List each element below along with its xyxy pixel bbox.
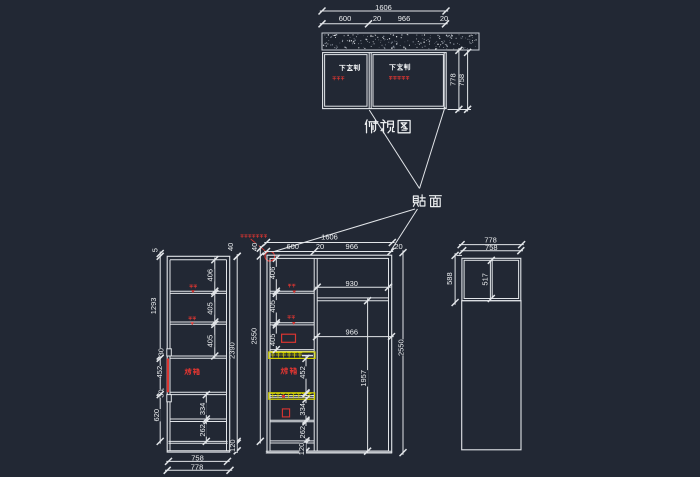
svg-text:5: 5 xyxy=(151,248,160,252)
svg-text:262: 262 xyxy=(198,424,207,437)
svg-text:966: 966 xyxy=(398,14,411,23)
svg-text:1293: 1293 xyxy=(149,298,158,315)
svg-text:2550: 2550 xyxy=(396,339,405,356)
svg-text:20: 20 xyxy=(394,242,402,251)
svg-text:452: 452 xyxy=(155,366,164,379)
svg-text:334: 334 xyxy=(298,403,307,416)
svg-text:778: 778 xyxy=(191,462,204,471)
svg-text:405: 405 xyxy=(206,302,215,315)
svg-text:2550: 2550 xyxy=(250,328,259,345)
svg-text:600: 600 xyxy=(286,242,299,251)
svg-text:930: 930 xyxy=(345,279,358,288)
svg-text:405: 405 xyxy=(268,334,277,347)
svg-text:120: 120 xyxy=(297,443,306,456)
svg-text:1606: 1606 xyxy=(321,232,338,241)
svg-text:966: 966 xyxy=(346,327,359,336)
svg-text:2390: 2390 xyxy=(228,342,237,359)
svg-text:452: 452 xyxy=(298,366,307,379)
svg-text:758: 758 xyxy=(485,243,498,252)
svg-text:262: 262 xyxy=(298,426,307,439)
svg-text:1606: 1606 xyxy=(375,3,392,12)
svg-text:20: 20 xyxy=(316,242,324,251)
svg-text:405: 405 xyxy=(206,335,215,348)
svg-text:966: 966 xyxy=(346,242,359,251)
svg-text:334: 334 xyxy=(198,403,207,416)
svg-text:758: 758 xyxy=(457,74,466,87)
svg-text:20: 20 xyxy=(440,14,448,23)
svg-text:600: 600 xyxy=(339,14,352,23)
svg-text:517: 517 xyxy=(480,273,489,286)
svg-text:588: 588 xyxy=(445,272,454,285)
svg-text:620: 620 xyxy=(152,409,161,422)
svg-text:778: 778 xyxy=(448,73,457,86)
svg-text:20: 20 xyxy=(373,14,381,23)
svg-text:406: 406 xyxy=(268,267,277,280)
svg-text:405: 405 xyxy=(268,300,277,313)
svg-text:1957: 1957 xyxy=(359,370,368,387)
svg-text:40: 40 xyxy=(226,243,235,251)
svg-text:758: 758 xyxy=(191,453,204,462)
svg-text:406: 406 xyxy=(206,269,215,282)
svg-text:120: 120 xyxy=(228,439,237,452)
